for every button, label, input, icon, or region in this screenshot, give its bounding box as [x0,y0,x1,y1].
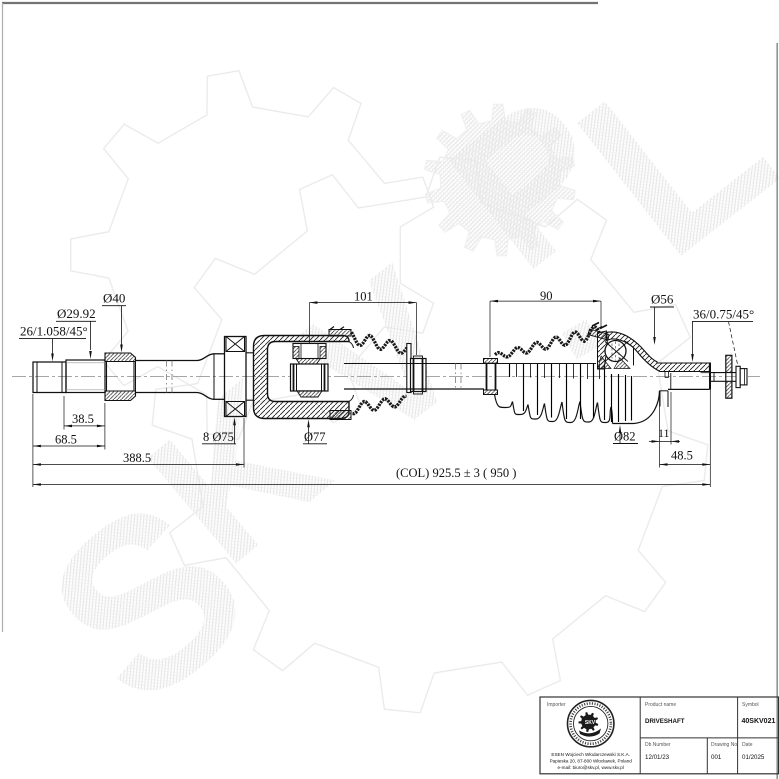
svg-text:ESEN Wojciech Włodarczewski S.: ESEN Wojciech Włodarczewski S.K.A. [551,752,630,757]
svg-text:Ø56: Ø56 [651,292,674,307]
svg-text:8 Ø75: 8 Ø75 [203,430,234,444]
svg-text:Ø77: Ø77 [304,430,326,444]
svg-text:38.5: 38.5 [72,412,94,426]
svg-text:Product name: Product name [645,702,676,708]
svg-text:68.5: 68.5 [55,433,77,447]
svg-text:388.5: 388.5 [123,451,151,465]
svg-text:01/2025: 01/2025 [742,754,765,761]
svg-text:12/01/23: 12/01/23 [645,754,670,761]
svg-text:Date: Date [742,742,753,748]
svg-text:Importer: Importer [547,702,566,708]
svg-text:DRIVESHAFT: DRIVESHAFT [645,718,685,725]
svg-text:36/0.75/45°: 36/0.75/45° [693,307,754,322]
svg-text:SKV: SKV [585,720,596,726]
svg-text:Db Number: Db Number [645,742,671,748]
svg-text:Ø82: Ø82 [614,430,636,444]
svg-text:40SKV021: 40SKV021 [742,718,776,725]
svg-text:e-mail: biuro@skv.pl, www.skv.: e-mail: biuro@skv.pl, www.skv.pl [558,765,624,770]
svg-text:101: 101 [354,290,373,304]
svg-text:Drawing No: Drawing No [711,742,737,748]
svg-text:Papieska 20, 87-800 Włocławek,: Papieska 20, 87-800 Włocławek, Poland [550,759,633,764]
svg-text:001: 001 [711,754,722,761]
svg-text:Symbol: Symbol [742,702,759,708]
svg-text:48.5: 48.5 [671,449,693,463]
svg-text:26/1.058/45°: 26/1.058/45° [20,324,88,339]
svg-text:Ø40: Ø40 [103,291,125,306]
svg-text:Ø29.92: Ø29.92 [57,306,96,321]
svg-text:(COL) 925.5 ± 3 ( 950 ): (COL) 925.5 ± 3 ( 950 ) [396,466,516,480]
